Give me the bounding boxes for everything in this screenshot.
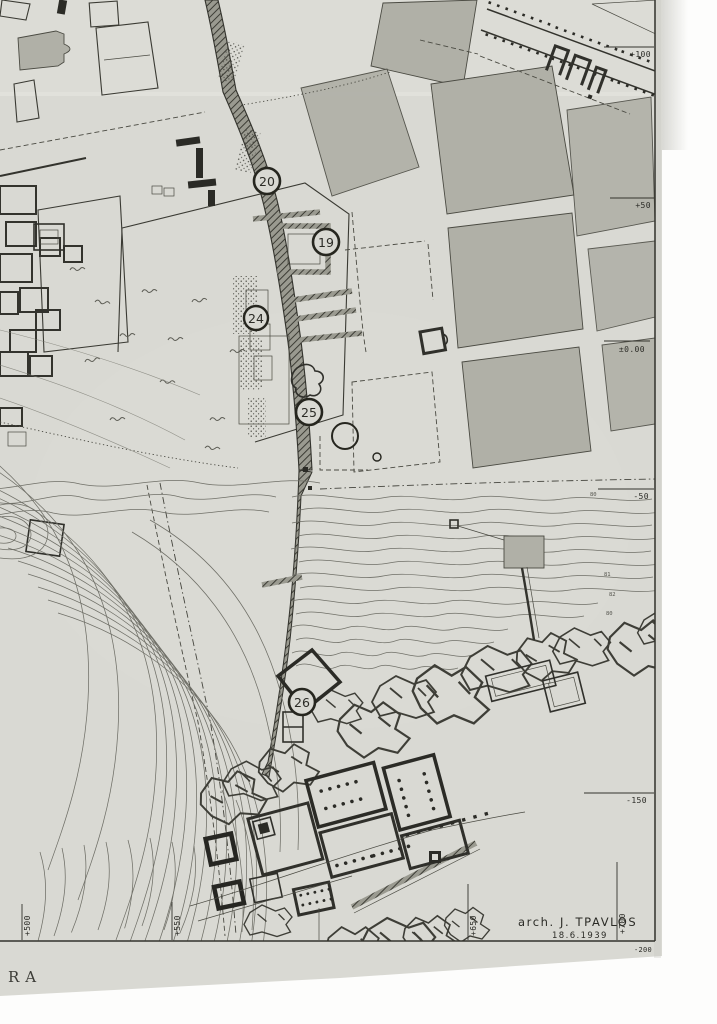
grid-label-plus500: +500 (23, 915, 32, 936)
architect-signature: arch. J. TPAVLOS (518, 915, 637, 929)
caption-fragment: RA (8, 968, 42, 986)
marker-24-label: 24 (248, 311, 264, 326)
page-curl-shade (662, 0, 688, 150)
grid-label-minus200: -200 (634, 946, 652, 954)
marker-26-label: 26 (294, 695, 310, 710)
archaeological-map-scan: 80 81 82 80 (0, 0, 717, 1024)
marker-25-label: 25 (301, 405, 317, 420)
cistern (504, 536, 544, 568)
plan-date: 18.6.1939 (552, 931, 608, 941)
marker-24: 24 (244, 306, 268, 330)
contour-label: 80 (590, 492, 597, 498)
marker-20: 20 (254, 168, 280, 194)
map-canvas: 80 81 82 80 (0, 0, 717, 1024)
marker-19-label: 19 (318, 235, 334, 250)
marker-26: 26 (289, 689, 315, 715)
marker-19: 19 (313, 229, 339, 255)
grid-label-plus100: +100 (630, 50, 651, 59)
grid-label-minus50: -50 (633, 492, 649, 501)
contour-label: 81 (604, 572, 611, 578)
grid-label-minus150: -150 (626, 796, 647, 805)
grid-label-plus50: +50 (635, 201, 651, 210)
contour-label: 82 (609, 592, 616, 598)
grid-label-zero: ±0.00 (619, 345, 645, 354)
marker-20-label: 20 (259, 174, 275, 189)
marker-25: 25 (296, 399, 322, 425)
contour-label: 80 (606, 611, 613, 617)
grid-label-plus650: +650 (469, 915, 478, 936)
grid-label-plus550: +550 (173, 915, 182, 936)
